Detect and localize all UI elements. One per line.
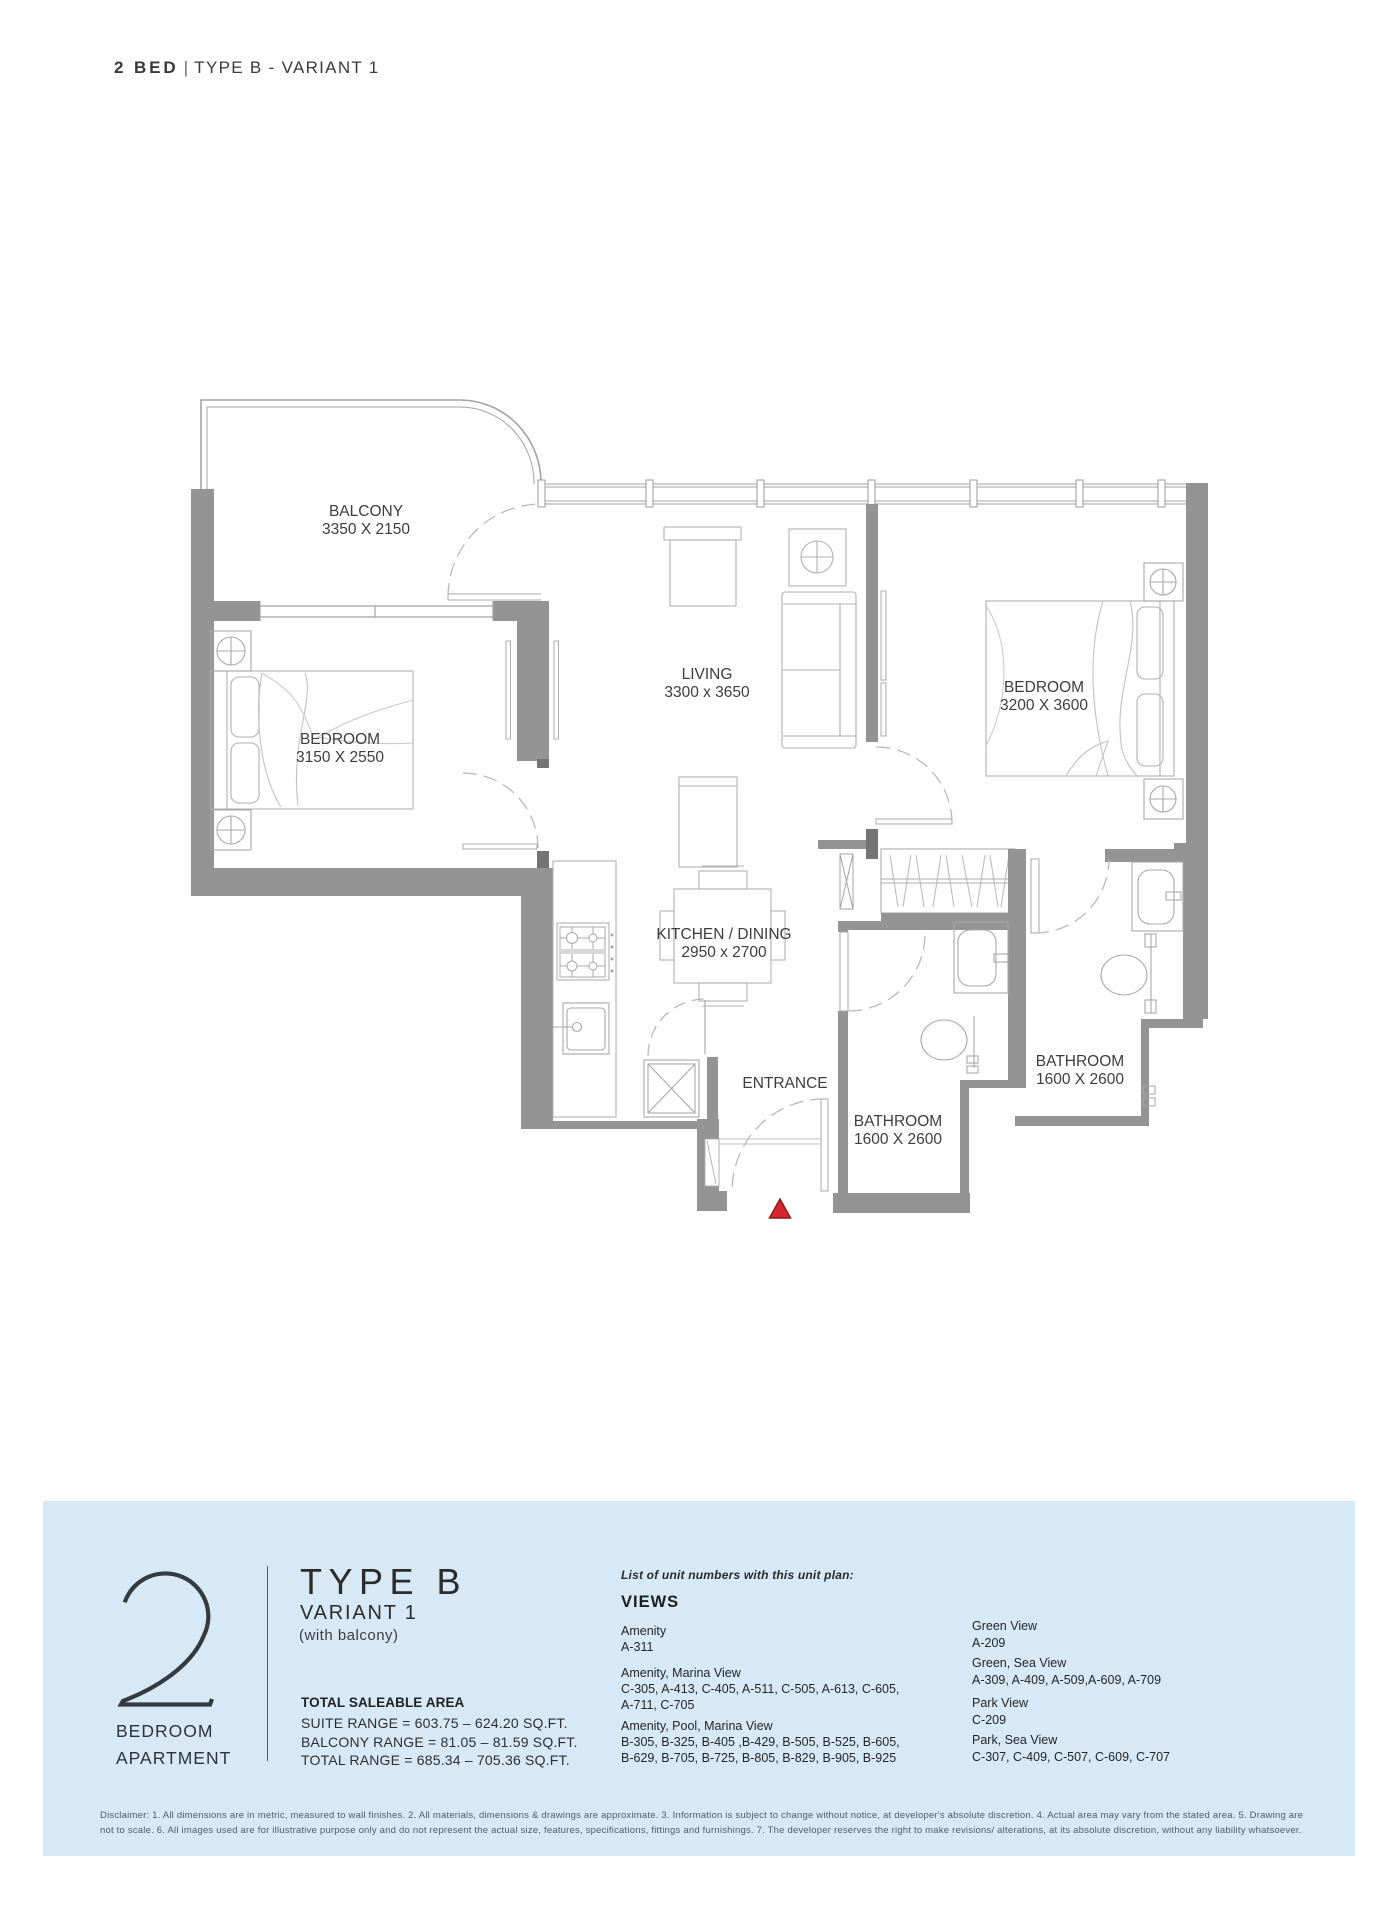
svg-text:ENTRANCE: ENTRANCE (742, 1075, 827, 1092)
svg-text:1600 X 2600: 1600 X 2600 (854, 1131, 942, 1148)
svg-text:3200 X 3600: 3200 X 3600 (1000, 697, 1088, 714)
svg-text:LIVING: LIVING (682, 666, 733, 683)
svg-text:BEDROOM: BEDROOM (1004, 679, 1084, 696)
svg-text:BALCONY: BALCONY (329, 503, 403, 520)
svg-text:1600 X 2600: 1600 X 2600 (1036, 1071, 1124, 1088)
svg-text:3300 x 3650: 3300 x 3650 (664, 684, 750, 701)
svg-text:BATHROOM: BATHROOM (854, 1113, 942, 1130)
svg-text:3150 X 2550: 3150 X 2550 (296, 749, 384, 766)
svg-text:KITCHEN / DINING: KITCHEN / DINING (656, 926, 791, 943)
svg-text:BATHROOM: BATHROOM (1036, 1053, 1124, 1070)
svg-text:2950 x 2700: 2950 x 2700 (681, 944, 767, 961)
svg-text:BEDROOM: BEDROOM (300, 731, 380, 748)
svg-text:3350 X 2150: 3350 X 2150 (322, 521, 410, 538)
